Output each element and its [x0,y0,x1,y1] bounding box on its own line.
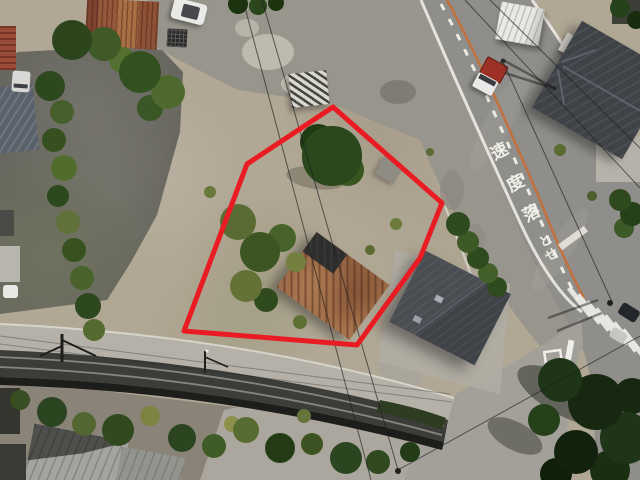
utility-pole [501,59,506,64]
insulator [206,350,209,353]
property-boundary-outline [184,107,442,345]
utility-pole [607,300,613,306]
aerial-photo: 速 度 落 と せ [0,0,640,480]
pole-shadows [505,61,602,331]
utility-pole [395,468,401,474]
